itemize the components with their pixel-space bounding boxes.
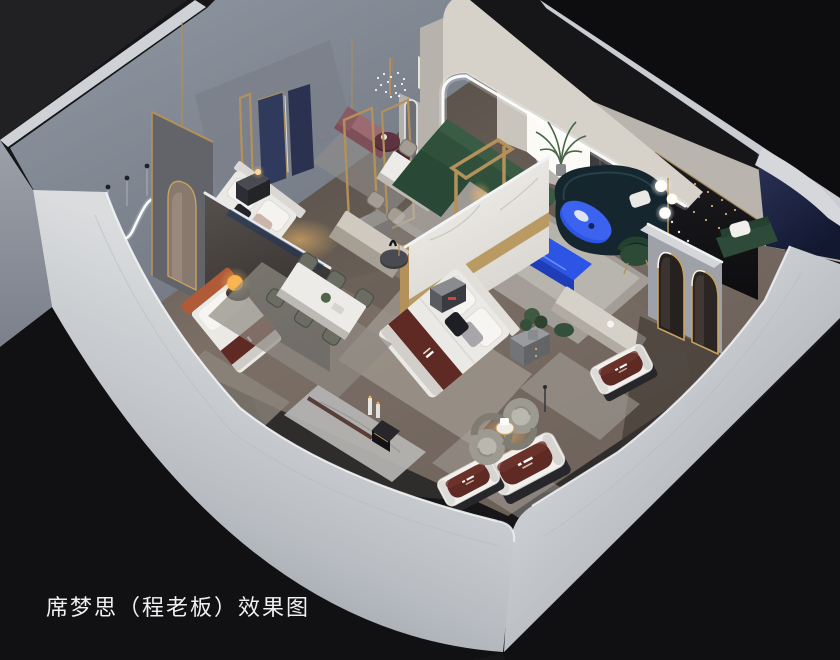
arch-mirror-2	[692, 271, 718, 354]
standing-mirror-panel	[152, 112, 213, 308]
caption-text: 席梦思（程老板）效果图	[46, 590, 310, 622]
isometric-scene	[0, 0, 840, 660]
green-ottoman	[554, 323, 574, 337]
arch-mirror-1	[658, 253, 684, 340]
showroom-render: 席梦思（程老板）效果图	[0, 0, 840, 660]
